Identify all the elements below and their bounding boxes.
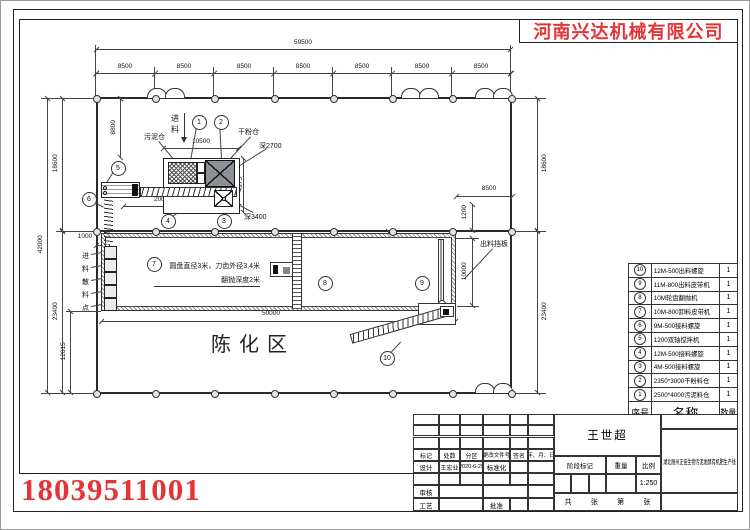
tb-ordinal: 第 [617, 497, 624, 507]
dimension-label: 12015 [61, 329, 68, 373]
mixer-wheel [103, 186, 107, 190]
tb-cell-empty [528, 414, 554, 425]
turner-machine-part [273, 265, 278, 274]
tb-check: 审核 [413, 485, 439, 498]
dimension-line [62, 98, 63, 231]
tb-cell-empty [510, 437, 528, 449]
tb-cell-empty [460, 425, 483, 436]
dimension-label: 8500 [222, 64, 266, 71]
tb-cell-empty [528, 485, 554, 498]
tb-project-name: 湖北随州正佳生物污泥发酵有机肥生产线 [663, 456, 736, 466]
dimension-label: 8500 [162, 64, 206, 71]
bom-item-name: 9M-500接料螺旋 [652, 319, 720, 332]
turner-note-2: 翻抛深度2米 [154, 277, 260, 287]
tb-sign: 签名 [510, 449, 528, 461]
tb-mark: 标记 [413, 449, 439, 461]
dimension-label: 8500 [340, 64, 384, 71]
mixer-motor [132, 184, 138, 196]
tb-cell-empty [460, 414, 483, 425]
bom-item-balloon: 3 [634, 361, 646, 373]
extension-line [451, 67, 452, 97]
bom-item-no: 3 [629, 361, 652, 374]
tb-cell-empty [439, 425, 460, 436]
column-marker [389, 390, 397, 398]
door-arc [401, 88, 421, 98]
screw-pit-box [214, 190, 233, 207]
column-marker [152, 390, 160, 398]
aging-area-label: 陈化区 [211, 335, 295, 355]
extension-line [457, 306, 479, 307]
tb-cell-empty [661, 493, 738, 511]
tb-design-date: 2020-6-29 [460, 461, 483, 473]
balloon-7: 7 [147, 257, 162, 272]
tb-sheet-row: 共 张 第 张 [554, 493, 661, 511]
dimension-label: 18600 [53, 141, 60, 185]
column-marker [389, 228, 397, 236]
tb-cell-empty [483, 485, 528, 498]
bom-item-balloon: 5 [634, 333, 646, 345]
feed-arrow-line [184, 113, 185, 137]
bom-item-name: 4M-500接料螺旋 [652, 361, 720, 374]
tb-change-doc: 更改文件号 [483, 449, 510, 461]
bom-item-qty: 1 [720, 388, 737, 401]
door-arc [475, 88, 495, 98]
dry-powder-silo [205, 160, 235, 187]
scatter-point-box [104, 285, 117, 298]
extension-line [273, 67, 274, 97]
company-name-cell: 河南兴达机械有限公司 [519, 19, 738, 43]
dimension-line [163, 148, 239, 149]
bom-item-name: 12M-500出料螺旋 [652, 264, 720, 277]
tb-cell-empty [510, 498, 528, 511]
mixer-wheel [103, 191, 107, 195]
dimension-line [472, 238, 473, 306]
tb-drafter-name: 王世超 [554, 414, 661, 456]
tb-designer: 王宏业 [439, 461, 460, 473]
balloon-10: 10 [380, 351, 395, 366]
scatter-point-box [104, 246, 117, 259]
bom-row: 12500*4000污泥料仓1 [629, 388, 737, 402]
column-marker [508, 95, 516, 103]
extension-line [391, 67, 392, 97]
dimension-label: 18600 [542, 141, 549, 185]
column-marker [152, 95, 160, 103]
tb-cell-empty [528, 498, 554, 511]
tb-zone: 分区 [460, 449, 483, 461]
tb-cell-empty [483, 414, 510, 425]
tb-cell-empty [413, 473, 439, 485]
tb-cell-empty [510, 414, 528, 425]
door-arc [165, 88, 185, 98]
bom-item-qty: 1 [720, 278, 737, 291]
bom-item-no: 10 [629, 264, 652, 277]
tb-project-cell: 湖北随州正佳生物污泥发酵有机肥生产线 [661, 429, 738, 493]
bom-item-no: 7 [629, 305, 652, 318]
column-marker [152, 228, 160, 236]
tb-standard: 标准化 [483, 461, 510, 473]
dimension-line [537, 231, 538, 393]
column-marker [211, 228, 219, 236]
tb-cell-empty [528, 437, 554, 449]
mixer-5 [101, 182, 140, 198]
tb-count: 处数 [439, 449, 460, 461]
dimension-line [472, 204, 473, 231]
tb-total: 共 [565, 497, 572, 507]
bom-item-no: 1 [629, 388, 652, 401]
bom-item-name: 10M-800卸料皮带机 [652, 305, 720, 318]
tb-stage-box [571, 474, 589, 493]
powder-silo-label: 干粉仓 [238, 129, 259, 136]
tb-cell-empty [483, 473, 510, 485]
bom-body: 1012M-500出料螺旋1911M-800出料皮带机1810M轮盘翻抛机171… [629, 264, 737, 402]
bom-item-qty: 1 [720, 319, 737, 332]
bom-item-balloon: 2 [634, 375, 646, 387]
bom-item-no: 4 [629, 347, 652, 360]
dimension-label: 8500 [459, 64, 503, 71]
tb-stage-box [589, 474, 606, 493]
column-marker [271, 228, 279, 236]
dimension-line [120, 98, 121, 158]
scatter-point-box [104, 298, 117, 311]
balloon-4: 4 [161, 214, 176, 229]
column-marker [449, 228, 457, 236]
pit-cell-b [197, 173, 205, 184]
depth-2700-label: 深2700 [259, 143, 282, 150]
bom-item-no: 6 [629, 319, 652, 332]
tb-scale-value: 1:250 [636, 474, 661, 493]
scatter-points-label: 进料散料点 [82, 250, 90, 315]
extension-line [510, 45, 511, 67]
tb-cell-empty [510, 425, 528, 436]
extension-line [95, 45, 96, 67]
column-marker [93, 390, 101, 398]
column-marker [449, 95, 457, 103]
bom-item-balloon: 9 [634, 278, 646, 290]
column-marker [389, 95, 397, 103]
dimension-label: 23400 [542, 289, 549, 333]
tb-date: 年、月、日 [528, 449, 554, 461]
bom-row: 911M-800出料皮带机1 [629, 278, 737, 292]
company-name: 河南兴达机械有限公司 [534, 18, 724, 44]
balloon-9: 9 [415, 276, 430, 291]
column-marker [93, 95, 101, 103]
depth-3400-label: 深3400 [244, 214, 267, 221]
bom-item-qty: 1 [720, 374, 737, 387]
extension-line [56, 231, 96, 232]
dimension-label: 8800 [111, 105, 118, 149]
phone-number: 18039511001 [21, 472, 201, 508]
bom-item-balloon: 8 [634, 292, 646, 304]
scatter-point-box [104, 272, 117, 285]
dimension-label: 10000 [462, 249, 469, 293]
bom-item-name: 2350*3000干粉料仓 [652, 374, 720, 387]
dimension-line [96, 73, 511, 74]
dimension-line [537, 98, 538, 231]
drawing-sheet: 河南兴达机械有限公司 18039511001 [0, 0, 750, 530]
bom-item-balloon: 4 [634, 347, 646, 359]
dimension-label: 50000 [249, 311, 293, 318]
tb-scale: 比例 [636, 456, 661, 474]
bom-row: 412M-500接料螺旋1 [629, 347, 737, 361]
bom-item-balloon: 1 [634, 389, 646, 401]
bom-item-no: 2 [629, 374, 652, 387]
extension-line [456, 238, 479, 239]
extension-line [512, 98, 546, 99]
discharge-baffle-label: 出料挡板 [480, 241, 508, 248]
turner-note-1: 圆盘直径3米，刀齿外径3.4米 [154, 263, 260, 270]
bom-item-balloon: 10 [634, 264, 646, 276]
door-arc [419, 88, 439, 98]
tb-cell-empty [439, 437, 460, 449]
tb-sheet1: 张 [591, 497, 598, 507]
dimension-label: 8500 [467, 186, 511, 193]
bom-item-name: 11M-800出料皮带机 [652, 278, 720, 291]
tb-stage-box [554, 474, 571, 493]
dimension-line [70, 311, 71, 393]
bom-item-name: 1200双轴搅拌机 [652, 333, 720, 346]
extension-line [512, 393, 546, 394]
column-marker [330, 228, 338, 236]
sludge-silo-label: 污泥仓 [144, 134, 165, 141]
screw-motor-core [443, 309, 449, 315]
tb-cell-empty [528, 425, 554, 436]
bom-row: 34M-500接料螺旋1 [629, 361, 737, 375]
tb-cell-empty [439, 485, 483, 498]
discharge-belt [438, 239, 444, 306]
bom-item-qty: 1 [720, 264, 737, 277]
column-marker [211, 390, 219, 398]
tb-cell-empty [528, 473, 554, 485]
balloon-6: 6 [82, 192, 97, 207]
tb-cell-empty [483, 425, 510, 436]
tb-stage: 阶段标记 [554, 456, 606, 474]
bom-item-no: 9 [629, 278, 652, 291]
bom-item-qty: 1 [720, 361, 737, 374]
dimension-line [47, 98, 48, 393]
extension-line [332, 67, 333, 97]
bom-item-balloon: 6 [634, 320, 646, 332]
extension-line [95, 67, 96, 97]
title-block: 标记 处数 分区 更改文件号 签名 年、月、日 设计 王宏业 2020-6-29… [413, 414, 738, 511]
turner-machine-part [283, 267, 290, 274]
dimension-line [96, 49, 511, 50]
bom-item-qty: 1 [720, 347, 737, 360]
tb-cell-empty [661, 414, 738, 429]
balloon-5: 5 [111, 161, 126, 176]
dimension-label: 59500 [281, 40, 325, 47]
column-marker [271, 390, 279, 398]
tb-cell-empty [606, 474, 636, 493]
bom-row: 51200双轴搅拌机1 [629, 333, 737, 347]
extension-line [213, 67, 214, 97]
tb-cell-empty [510, 461, 528, 473]
bom-item-no: 8 [629, 292, 652, 305]
balloon-2: 2 [214, 115, 229, 130]
bom-table: 1012M-500出料螺旋1911M-800出料皮带机1810M轮盘翻抛机171… [628, 263, 738, 425]
balloon-1: 1 [192, 115, 207, 130]
door-arc [475, 383, 495, 393]
extension-line [41, 393, 96, 394]
tb-design: 设计 [413, 461, 439, 473]
dimension-label: 8500 [103, 64, 147, 71]
screw-pit-hub [222, 197, 226, 201]
dimension-label: 10500 [179, 139, 223, 146]
bom-item-qty: 1 [720, 292, 737, 305]
tb-cell-empty [439, 498, 483, 511]
tb-cell-empty [460, 473, 483, 485]
extension-line [512, 231, 546, 232]
tb-cell-empty [528, 461, 554, 473]
column-marker [449, 390, 457, 398]
turner-rail [292, 234, 302, 309]
dimension-label: 23400 [53, 289, 60, 333]
dimension-label: 8500 [281, 64, 325, 71]
column-marker [508, 228, 516, 236]
tb-cell-empty [439, 414, 460, 425]
dimension-label: 42000 [38, 222, 45, 266]
tb-approve: 批准 [483, 498, 510, 511]
dimension-label: 1200 [462, 190, 469, 234]
extension-line [41, 98, 96, 99]
bom-item-name: 12M-500接料螺旋 [652, 347, 720, 360]
tb-cell-empty [413, 414, 439, 425]
column-marker [211, 95, 219, 103]
column-marker [93, 228, 101, 236]
bom-item-balloon: 7 [634, 306, 646, 318]
tb-cell-empty [413, 425, 439, 436]
bom-item-qty: 1 [720, 333, 737, 346]
scatter-point-box [104, 259, 117, 272]
bom-row: 710M-800卸料皮带机1 [629, 305, 737, 319]
tb-weight: 重量 [606, 456, 636, 474]
dimension-label: 8500 [400, 64, 444, 71]
column-marker [508, 390, 516, 398]
building-right-wall [510, 97, 512, 393]
pit-cell-a [197, 162, 205, 173]
tb-cell-empty [483, 437, 510, 449]
tb-cell-empty [439, 473, 460, 485]
turner-machine [270, 262, 293, 277]
sludge-silo [168, 162, 197, 184]
bom-item-qty: 1 [720, 305, 737, 318]
bom-row: 810M轮盘翻抛机1 [629, 292, 737, 306]
bom-row: 69M-500接料螺旋1 [629, 319, 737, 333]
tb-cell-empty [413, 437, 439, 449]
bom-item-name: 10M轮盘翻抛机 [652, 292, 720, 305]
bom-item-no: 5 [629, 333, 652, 346]
column-marker [271, 95, 279, 103]
column-marker [330, 390, 338, 398]
screw-motor [440, 306, 454, 317]
bom-row: 1012M-500出料螺旋1 [629, 264, 737, 278]
tb-process: 工艺 [413, 498, 439, 511]
bom-item-name: 2500*4000污泥料仓 [652, 388, 720, 401]
tb-cell-empty [460, 437, 483, 449]
column-marker [330, 95, 338, 103]
feed-in-label: 进料 [171, 113, 180, 135]
bom-row: 22350*3000干粉料仓1 [629, 374, 737, 388]
tb-sheet2: 张 [643, 497, 650, 507]
balloon-3: 3 [217, 214, 232, 229]
balloon-8: 8 [318, 276, 333, 291]
tb-cell-empty [510, 473, 528, 485]
